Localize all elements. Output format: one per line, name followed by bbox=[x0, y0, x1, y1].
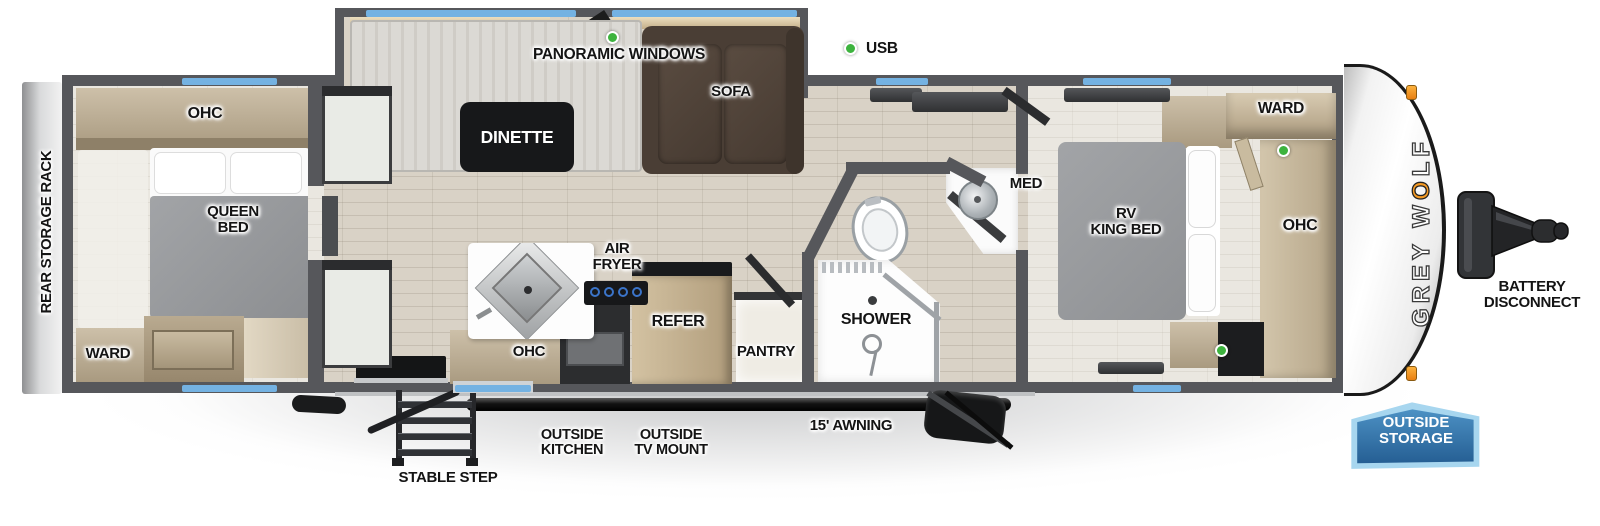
window bbox=[1083, 78, 1171, 85]
front-overhead-tall-cabinet bbox=[1260, 140, 1336, 378]
step-tread bbox=[398, 434, 472, 440]
med-label: MED bbox=[1010, 176, 1042, 192]
entertainment-cabinet-lower bbox=[322, 260, 392, 368]
front-nightstand bbox=[1170, 322, 1218, 368]
battery-disconnect-label: BATTERY DISCONNECT bbox=[1484, 279, 1580, 311]
sink-drain-icon bbox=[524, 286, 532, 294]
pantry-label: PANTRY bbox=[737, 344, 795, 360]
pillow bbox=[1188, 234, 1216, 312]
rear-accessory-port bbox=[292, 395, 347, 415]
brand-logo: GREY WOLF bbox=[1407, 122, 1437, 342]
stable-step-label: STABLE STEP bbox=[399, 470, 498, 486]
window bbox=[1133, 385, 1181, 392]
front-ward-label: WARD bbox=[1258, 101, 1304, 117]
dinette-label-box: DINETTE bbox=[460, 102, 574, 172]
rear-ward-label: WARD bbox=[86, 346, 131, 362]
shower-drain-icon bbox=[868, 296, 877, 305]
clearance-light-icon bbox=[1406, 85, 1417, 100]
cabinet-top-cap bbox=[322, 86, 392, 96]
burner-icon bbox=[632, 287, 642, 297]
window bbox=[612, 10, 797, 17]
entertainment-cabinet-upper bbox=[322, 86, 392, 184]
usb-label: USB bbox=[866, 41, 898, 57]
queen-bed-label: QUEEN BED bbox=[207, 204, 259, 236]
step-tread bbox=[398, 450, 472, 456]
front-overhead-cabinet bbox=[1162, 96, 1232, 148]
pillow bbox=[154, 152, 226, 194]
paw-icon: O bbox=[1408, 176, 1435, 200]
entry-door-window bbox=[455, 385, 531, 392]
window bbox=[182, 385, 277, 392]
sofa-label: SOFA bbox=[711, 84, 751, 100]
usb-indicator-icon bbox=[1215, 344, 1228, 357]
brand-logo-post: LF bbox=[1408, 137, 1435, 176]
window-valance bbox=[1098, 362, 1164, 374]
burner-icon bbox=[590, 287, 600, 297]
kitchen-island bbox=[468, 243, 594, 339]
rear-storage-rack-label: REAR STORAGE RACK bbox=[37, 142, 57, 322]
step-foot bbox=[392, 458, 404, 466]
panoramic-windows-label: PANORAMIC WINDOWS bbox=[533, 47, 705, 63]
shower-grate bbox=[822, 262, 884, 273]
usb-indicator-icon bbox=[1277, 144, 1290, 157]
rear-dresser-drawer bbox=[152, 330, 234, 370]
kitchen-ohc-label: OHC bbox=[513, 344, 545, 360]
pantry-alcove bbox=[736, 300, 812, 382]
burner-icon bbox=[618, 287, 628, 297]
air-fryer-label: AIR FRYER bbox=[593, 241, 642, 273]
window bbox=[876, 78, 928, 85]
dinette-label: DINETTE bbox=[481, 127, 554, 148]
sofa-cushion bbox=[724, 44, 788, 164]
front-ohc-label: OHC bbox=[1283, 218, 1318, 235]
hitch-tongue bbox=[1442, 180, 1572, 290]
toilet-hinge bbox=[864, 196, 881, 207]
window-valance bbox=[1064, 88, 1170, 102]
awning-label: 15' AWNING bbox=[810, 418, 893, 434]
floorplan-diagram: REAR STORAGE RACK DINETTE bbox=[0, 0, 1600, 526]
refer-label: REFER bbox=[652, 314, 705, 331]
window bbox=[366, 10, 576, 17]
pillow bbox=[230, 152, 302, 194]
outside-tv-mount-label: OUTSIDE TV MOUNT bbox=[634, 428, 707, 458]
window bbox=[182, 78, 277, 85]
toilet-lid bbox=[857, 204, 903, 255]
faucet-icon bbox=[476, 307, 492, 319]
usb-legend-icon bbox=[844, 42, 857, 55]
step-foot bbox=[466, 458, 478, 466]
outside-storage-label: OUTSIDE STORAGE bbox=[1350, 415, 1482, 447]
shower-rail bbox=[934, 302, 939, 382]
usb-indicator-icon bbox=[606, 31, 619, 44]
bath-sink-drain bbox=[974, 196, 981, 203]
shower-label: SHOWER bbox=[841, 312, 911, 329]
outside-kitchen-sill bbox=[354, 378, 448, 383]
clearance-light-icon bbox=[1406, 366, 1417, 381]
brand-logo-pre: GREY W bbox=[1408, 200, 1435, 327]
shower-faucet-icon bbox=[862, 334, 882, 354]
tv-cabinet bbox=[322, 196, 338, 256]
pillow bbox=[1188, 150, 1216, 228]
rear-bench bbox=[244, 318, 310, 378]
king-bed-label: RV KING BED bbox=[1091, 206, 1162, 238]
sofa-arm bbox=[786, 28, 804, 174]
rear-bedroom-rug bbox=[78, 150, 148, 328]
window-valance bbox=[912, 92, 1008, 112]
outside-kitchen-label: OUTSIDE KITCHEN bbox=[541, 428, 603, 458]
step-tread bbox=[398, 418, 472, 424]
burner-icon bbox=[604, 287, 614, 297]
cabinet-top-cap bbox=[322, 260, 392, 270]
rear-ohc-label: OHC bbox=[188, 106, 223, 123]
